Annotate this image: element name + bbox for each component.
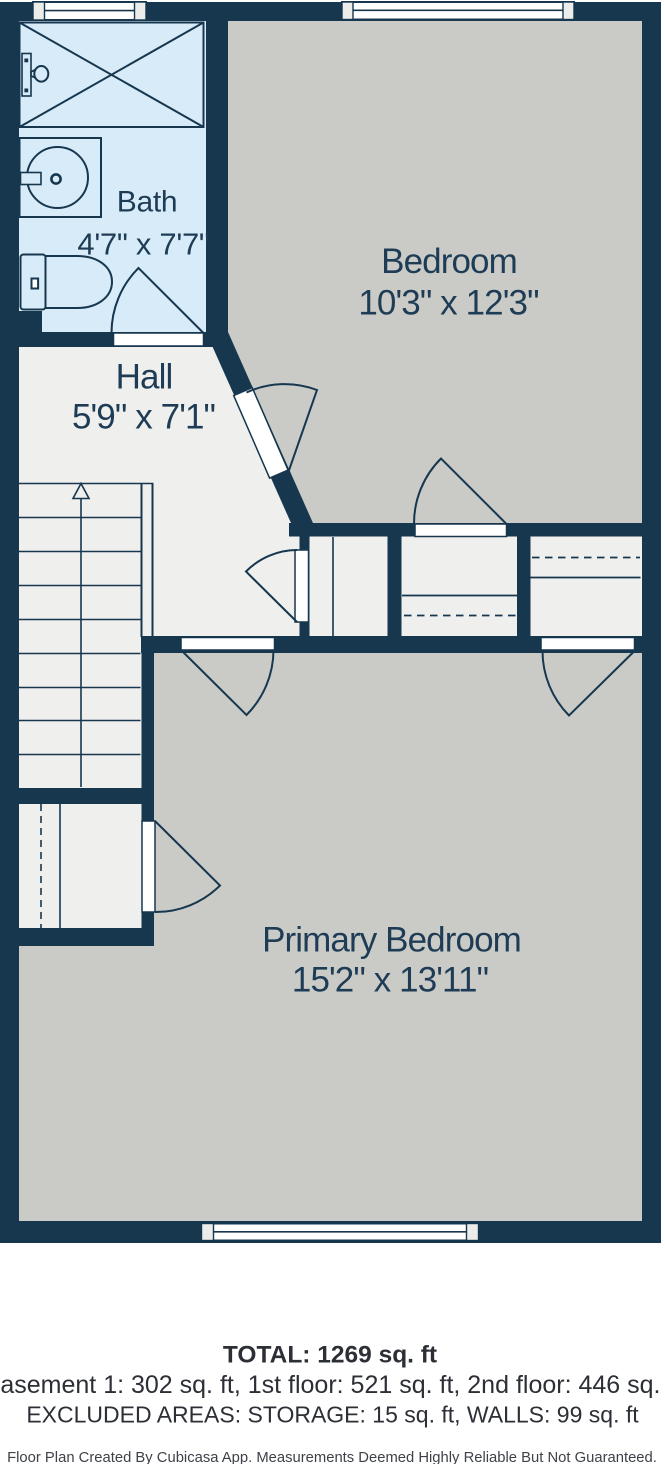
svg-text:4'7" x 7'7": 4'7" x 7'7" <box>77 227 209 262</box>
svg-text:Primary Bedroom: Primary Bedroom <box>262 921 521 960</box>
svg-text:5'9" x 7'1": 5'9" x 7'1" <box>72 398 215 437</box>
svg-text:TOTAL: 1269 sq. ft: TOTAL: 1269 sq. ft <box>223 1342 437 1369</box>
svg-text:15'2" x 13'11": 15'2" x 13'11" <box>292 961 488 1000</box>
svg-text:Bedroom: Bedroom <box>381 242 517 281</box>
svg-text:Floor Plan Created By Cubicasa: Floor Plan Created By Cubicasa App. Meas… <box>7 1450 657 1464</box>
svg-text:10'3" x 12'3": 10'3" x 12'3" <box>358 284 538 323</box>
svg-text:Bath: Bath <box>117 186 178 219</box>
svg-text:Basement 1: 302 sq. ft, 1st fl: Basement 1: 302 sq. ft, 1st floor: 521 s… <box>0 1371 665 1399</box>
svg-text:Hall: Hall <box>116 358 173 397</box>
svg-text:EXCLUDED AREAS: STORAGE: 15 sq: EXCLUDED AREAS: STORAGE: 15 sq. ft, WALL… <box>26 1402 639 1428</box>
